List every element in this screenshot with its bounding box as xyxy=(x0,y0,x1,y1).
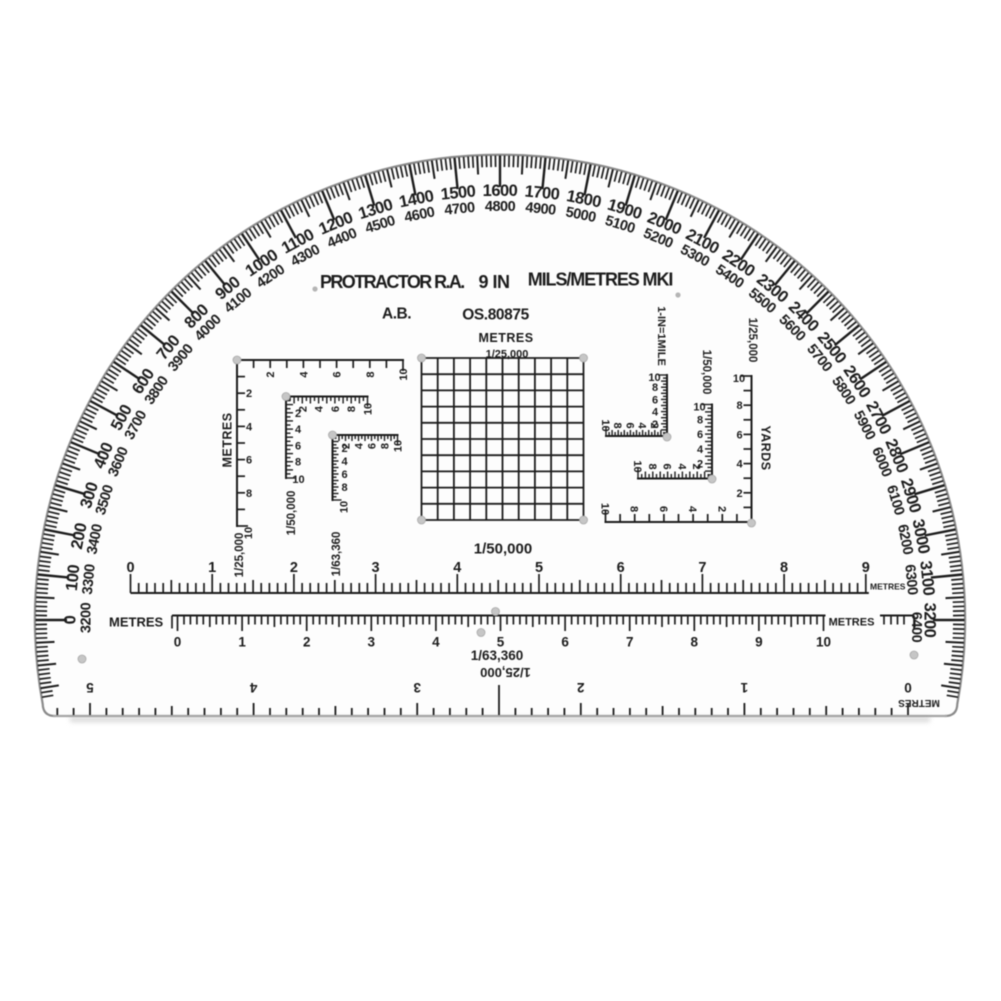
svg-text:6: 6 xyxy=(330,406,342,412)
svg-text:METRES: METRES xyxy=(478,331,533,345)
svg-text:4: 4 xyxy=(636,422,648,429)
svg-text:4: 4 xyxy=(298,371,310,378)
svg-text:3: 3 xyxy=(372,560,380,576)
svg-text:2: 2 xyxy=(652,419,658,431)
svg-text:1/25,000: 1/25,000 xyxy=(480,665,531,680)
svg-text:2: 2 xyxy=(715,506,727,512)
svg-text:4: 4 xyxy=(314,405,326,412)
svg-text:4: 4 xyxy=(675,463,687,470)
svg-text:MILS/METRES MKI: MILS/METRES MKI xyxy=(528,269,673,289)
svg-text:METRES: METRES xyxy=(870,582,906,592)
svg-text:9: 9 xyxy=(862,560,870,576)
svg-text:9: 9 xyxy=(755,634,763,649)
svg-text:4: 4 xyxy=(736,459,743,471)
svg-text:4: 4 xyxy=(453,560,461,576)
svg-text:1/63,360: 1/63,360 xyxy=(331,532,343,577)
svg-text:1/63,360: 1/63,360 xyxy=(471,648,524,663)
svg-text:A.B.: A.B. xyxy=(382,306,411,323)
svg-text:6: 6 xyxy=(295,440,301,452)
svg-text:8: 8 xyxy=(379,443,391,449)
svg-text:8: 8 xyxy=(628,506,640,512)
svg-text:0: 0 xyxy=(126,560,134,576)
svg-text:9 IN: 9 IN xyxy=(478,272,509,292)
svg-text:2: 2 xyxy=(341,443,347,455)
svg-text:8: 8 xyxy=(697,414,703,426)
svg-text:8: 8 xyxy=(780,560,788,576)
svg-text:4: 4 xyxy=(341,456,348,468)
svg-text:1: 1 xyxy=(740,680,748,695)
svg-text:OS.80875: OS.80875 xyxy=(462,307,529,324)
svg-text:1-IN=1MILE: 1-IN=1MILE xyxy=(655,306,667,366)
svg-text:2: 2 xyxy=(295,408,301,420)
svg-text:3: 3 xyxy=(368,634,376,649)
svg-text:1600: 1600 xyxy=(483,182,518,200)
svg-text:METRES: METRES xyxy=(109,615,164,630)
svg-text:5: 5 xyxy=(86,680,94,695)
svg-text:6: 6 xyxy=(561,634,569,649)
svg-text:4: 4 xyxy=(246,421,253,433)
svg-text:6: 6 xyxy=(246,455,252,467)
svg-text:6: 6 xyxy=(617,560,625,576)
svg-text:6: 6 xyxy=(652,394,658,406)
svg-text:10: 10 xyxy=(599,419,611,431)
svg-text:8: 8 xyxy=(246,488,252,500)
svg-text:1/25,000: 1/25,000 xyxy=(234,533,246,578)
svg-text:6: 6 xyxy=(366,443,378,449)
svg-text:8: 8 xyxy=(346,406,358,412)
svg-text:4: 4 xyxy=(249,680,257,695)
svg-text:10: 10 xyxy=(733,373,745,385)
svg-text:10: 10 xyxy=(693,401,705,413)
svg-text:10: 10 xyxy=(362,403,374,415)
svg-text:1/50,000: 1/50,000 xyxy=(700,350,712,395)
svg-text:1/50,000: 1/50,000 xyxy=(474,540,532,557)
svg-text:0: 0 xyxy=(904,680,912,695)
svg-text:1: 1 xyxy=(238,634,246,649)
svg-text:4: 4 xyxy=(686,506,698,513)
svg-text:2: 2 xyxy=(697,459,703,471)
svg-text:6: 6 xyxy=(657,506,669,512)
svg-text:1/50,000: 1/50,000 xyxy=(286,491,298,536)
svg-text:10: 10 xyxy=(631,460,643,472)
svg-text:6: 6 xyxy=(332,371,344,377)
svg-text:1: 1 xyxy=(208,560,216,576)
svg-text:3200: 3200 xyxy=(79,602,95,633)
svg-text:4900: 4900 xyxy=(525,200,557,219)
svg-text:6: 6 xyxy=(697,429,703,441)
svg-text:4: 4 xyxy=(652,407,659,419)
svg-text:4700: 4700 xyxy=(444,200,476,219)
svg-text:METRES: METRES xyxy=(898,697,940,708)
svg-text:0: 0 xyxy=(61,615,79,624)
svg-text:10: 10 xyxy=(599,503,611,515)
svg-text:10: 10 xyxy=(338,501,350,513)
svg-text:6: 6 xyxy=(341,469,347,481)
svg-text:2: 2 xyxy=(736,488,742,500)
svg-text:10: 10 xyxy=(292,474,304,486)
svg-text:10: 10 xyxy=(648,372,660,384)
svg-text:6: 6 xyxy=(736,429,742,441)
svg-text:4: 4 xyxy=(432,634,440,649)
svg-text:2: 2 xyxy=(303,634,311,649)
svg-text:8: 8 xyxy=(691,634,699,649)
svg-text:2: 2 xyxy=(246,388,252,400)
svg-text:6: 6 xyxy=(623,422,635,428)
svg-text:1/25,000: 1/25,000 xyxy=(746,318,758,363)
svg-text:10: 10 xyxy=(816,634,831,649)
svg-text:PROTRACTOR R.A.: PROTRACTOR R.A. xyxy=(320,272,464,292)
svg-text:4: 4 xyxy=(295,424,302,436)
svg-text:10: 10 xyxy=(392,440,404,452)
svg-text:8: 8 xyxy=(611,422,623,428)
svg-text:3300: 3300 xyxy=(80,563,99,595)
svg-text:0: 0 xyxy=(174,634,182,649)
svg-text:2: 2 xyxy=(290,560,298,576)
svg-text:METRES: METRES xyxy=(829,616,875,628)
svg-text:7: 7 xyxy=(698,560,706,576)
svg-text:10: 10 xyxy=(398,368,410,380)
svg-text:8: 8 xyxy=(736,400,742,412)
svg-text:3: 3 xyxy=(413,680,421,695)
svg-text:2: 2 xyxy=(265,371,277,377)
svg-text:8: 8 xyxy=(341,482,347,494)
svg-text:8: 8 xyxy=(646,463,658,469)
svg-text:6: 6 xyxy=(661,463,673,469)
svg-text:7: 7 xyxy=(626,634,634,649)
svg-text:4800: 4800 xyxy=(485,199,516,215)
svg-text:4: 4 xyxy=(353,442,365,449)
svg-text:4: 4 xyxy=(697,444,704,456)
svg-text:METRES: METRES xyxy=(221,412,235,467)
svg-text:8: 8 xyxy=(295,457,301,469)
svg-text:5: 5 xyxy=(535,560,543,576)
svg-text:8: 8 xyxy=(365,371,377,377)
svg-text:YARDS: YARDS xyxy=(759,425,773,470)
svg-text:2: 2 xyxy=(577,680,585,695)
